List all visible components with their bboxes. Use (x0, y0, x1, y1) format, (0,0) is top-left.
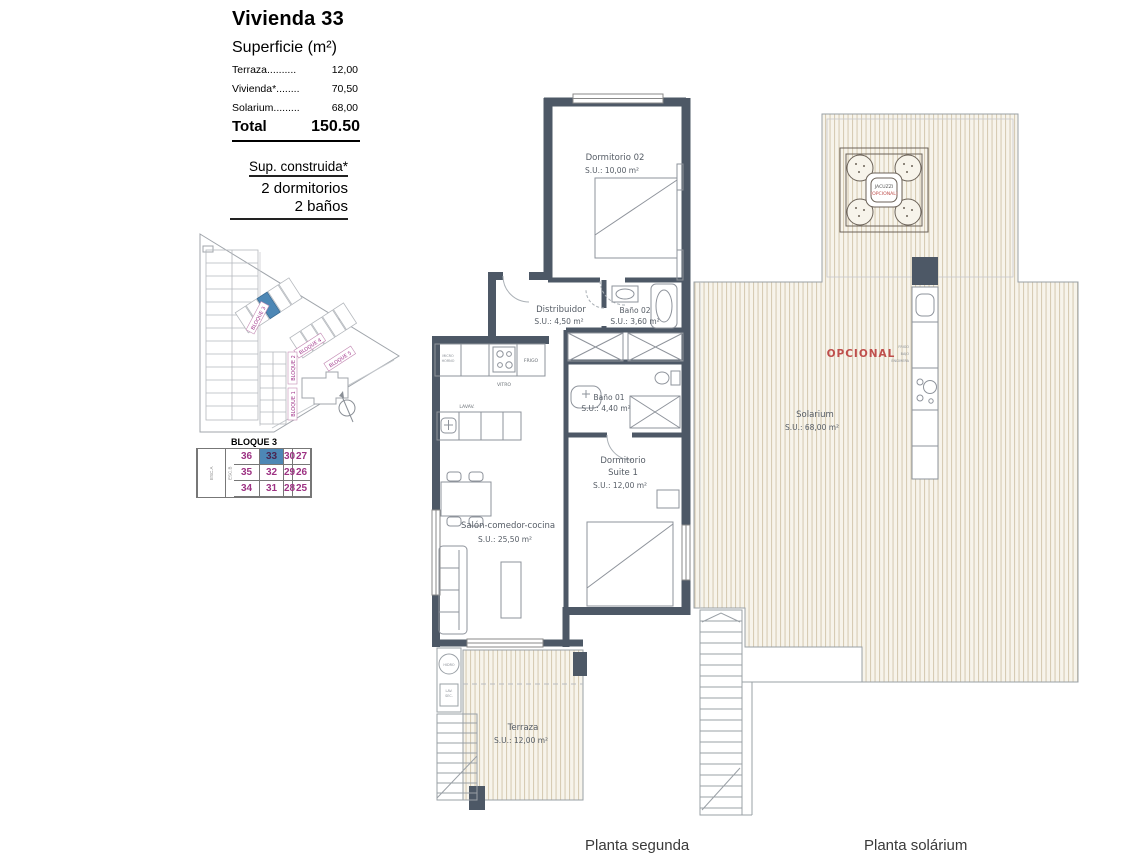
terraza-area: S.U.: 12,00 m² (494, 736, 548, 745)
hidro-label: HIDRO (443, 663, 455, 667)
suite-area: S.U.: 12,00 m² (593, 481, 647, 490)
toilet-icon (655, 372, 669, 384)
unit-cell: 32 (260, 465, 284, 481)
bloque5-label: BLOQUE 5 (324, 346, 356, 371)
unit-title: Vivienda 33 (232, 8, 366, 31)
caption-planta-segunda: Planta segunda (585, 837, 689, 854)
stairs-steps (700, 621, 742, 808)
terrace-pillar (573, 652, 587, 676)
vitro-label: VITRO (497, 382, 511, 388)
solarium-pillar (912, 257, 938, 285)
dormitorio02-area: S.U.: 10,00 m² (585, 166, 639, 175)
tv-cabinet-icon (501, 562, 521, 618)
dormitorio02-label: Dormitorio 02 (586, 153, 645, 163)
row-houses-center (260, 352, 286, 424)
distribuidor-area: S.U.: 4,50 m² (534, 317, 583, 326)
surface-subtitle: Superficie (m²) (232, 39, 366, 57)
site-plan: BLOQUE 3 BLOQUE 4 BLOQUE 5 BLOQUE 2 BLOQ… (190, 228, 405, 440)
terraza-label: Terraza (507, 723, 539, 733)
unit-cell: 25 (293, 481, 311, 497)
stair-a-label: ESC.A (197, 449, 225, 497)
cooktop-icon (493, 347, 515, 372)
unit-cell: 35 (234, 465, 260, 481)
frigo-label: FRIGO (524, 358, 539, 364)
svg-text:BLOQUE 1: BLOQUE 1 (291, 391, 297, 417)
micro-label: MICRO (442, 354, 454, 358)
surface-row: Terraza.......... 12,00 (232, 64, 358, 76)
jacuzzi-opcional-label: (OPCIONAL) (870, 191, 897, 197)
horno-label: HORNO (442, 359, 455, 363)
solarium-label: Solarium (796, 410, 834, 420)
unit-cell: 29 (284, 465, 293, 481)
bloque1-label: BLOQUE 1 (288, 388, 297, 420)
built-title: Sup. construida* (249, 159, 348, 177)
surface-value: 70,50 (332, 83, 358, 95)
surface-row: Solarium......... 68,00 (232, 102, 358, 114)
bano02-area: S.U.: 3,60 m² (610, 317, 659, 326)
unit-cell: 26 (293, 465, 311, 481)
total-value: 150.50 (311, 118, 360, 136)
suite-label-1: Dormitorio (600, 456, 645, 466)
surface-panel: Vivienda 33 Superficie (m²) Terraza.....… (232, 8, 366, 142)
summer-kitchen-counter (912, 287, 938, 479)
jacuzzi-label: JACUZZI (874, 184, 893, 190)
unit-cell-highlighted: 33 (260, 449, 284, 465)
bed-icon (595, 164, 683, 280)
surface-row: Vivienda*........ 70,50 (232, 83, 358, 95)
salon-area: S.U.: 25,50 m² (478, 535, 532, 544)
unit-cell: 27 (293, 449, 311, 465)
sofa-icon (439, 546, 467, 634)
bano02-label: Baño 02 (619, 306, 650, 315)
bano01-area: S.U.: 4,40 m² (581, 404, 630, 413)
bathrooms-count: 2 baños (230, 198, 348, 215)
bedrooms-count: 2 dormitorios (230, 180, 348, 197)
utility-closet (437, 648, 461, 712)
surface-value: 12,00 (332, 64, 358, 76)
solarium-stairs-icon (700, 610, 742, 815)
caption-planta-solarium: Planta solárium (864, 837, 967, 854)
bloque2-label: BLOQUE 2 (288, 352, 297, 384)
unit-cell: 28 (284, 481, 293, 497)
unit-cell: 31 (260, 481, 284, 497)
lav-label: LAV. (445, 689, 452, 693)
unit-table-grid: 36 ESC.A 33 30 ESC.B 27 35 32 29 26 34 3… (196, 448, 312, 498)
unit-cell: 36 (234, 449, 260, 465)
distribuidor-label: Distribuidor (536, 305, 586, 315)
surface-label: Vivienda*........ (232, 83, 300, 95)
unit-table-title: BLOQUE 3 (196, 437, 312, 447)
unit-cell: 30 (284, 449, 293, 465)
suite-bed-icon (587, 490, 679, 606)
opcional-label: OPCIONAL (827, 348, 896, 360)
windows (432, 94, 690, 647)
row-houses-left (206, 250, 260, 426)
planta-segunda-plan: MICRO HORNO VITRO FRIGO LAVAV. (425, 90, 700, 830)
total-label: Total (232, 118, 267, 135)
bathroom1-fixtures (571, 371, 680, 428)
suite-label-2: Suite 1 (608, 468, 638, 478)
planta-solarium-plan: JACUZZI (OPCIONAL) FRIGO BAJO ENCIMERA O… (690, 110, 1085, 825)
lavav-label: LAVAV. (459, 404, 474, 410)
surface-label: Terraza.......... (232, 64, 296, 76)
sec-label: SEC. (445, 694, 453, 698)
svg-text:BLOQUE 2: BLOQUE 2 (291, 355, 297, 381)
frigo-line2: BAJO (901, 352, 910, 356)
lower-boundary-lines (700, 682, 862, 815)
built-surface-block: Sup. construida* 2 dormitorios 2 baños (230, 158, 348, 220)
wardrobe-icons (568, 333, 683, 361)
laundry-counter (437, 412, 521, 440)
unit-number-table: BLOQUE 3 36 ESC.A 33 30 ESC.B 27 35 32 2… (196, 437, 312, 498)
salon-label: Salón-comedor-cocina (461, 520, 555, 531)
walls (432, 98, 686, 647)
frigo-line1: FRIGO (898, 345, 909, 349)
stair-b-label: ESC.B (225, 449, 234, 497)
surface-label: Solarium......... (232, 102, 300, 114)
unit-cell: 34 (234, 481, 260, 497)
bano01-label: Baño 01 (593, 393, 624, 402)
dining-table-icon (441, 472, 491, 526)
floorplan-sheet: Vivienda 33 Superficie (m²) Terraza.....… (0, 0, 1140, 860)
solarium-area: S.U.: 68,00 m² (785, 423, 839, 432)
surface-value: 68,00 (332, 102, 358, 114)
total-row: Total 150.50 (232, 118, 360, 142)
community-building (302, 372, 348, 404)
